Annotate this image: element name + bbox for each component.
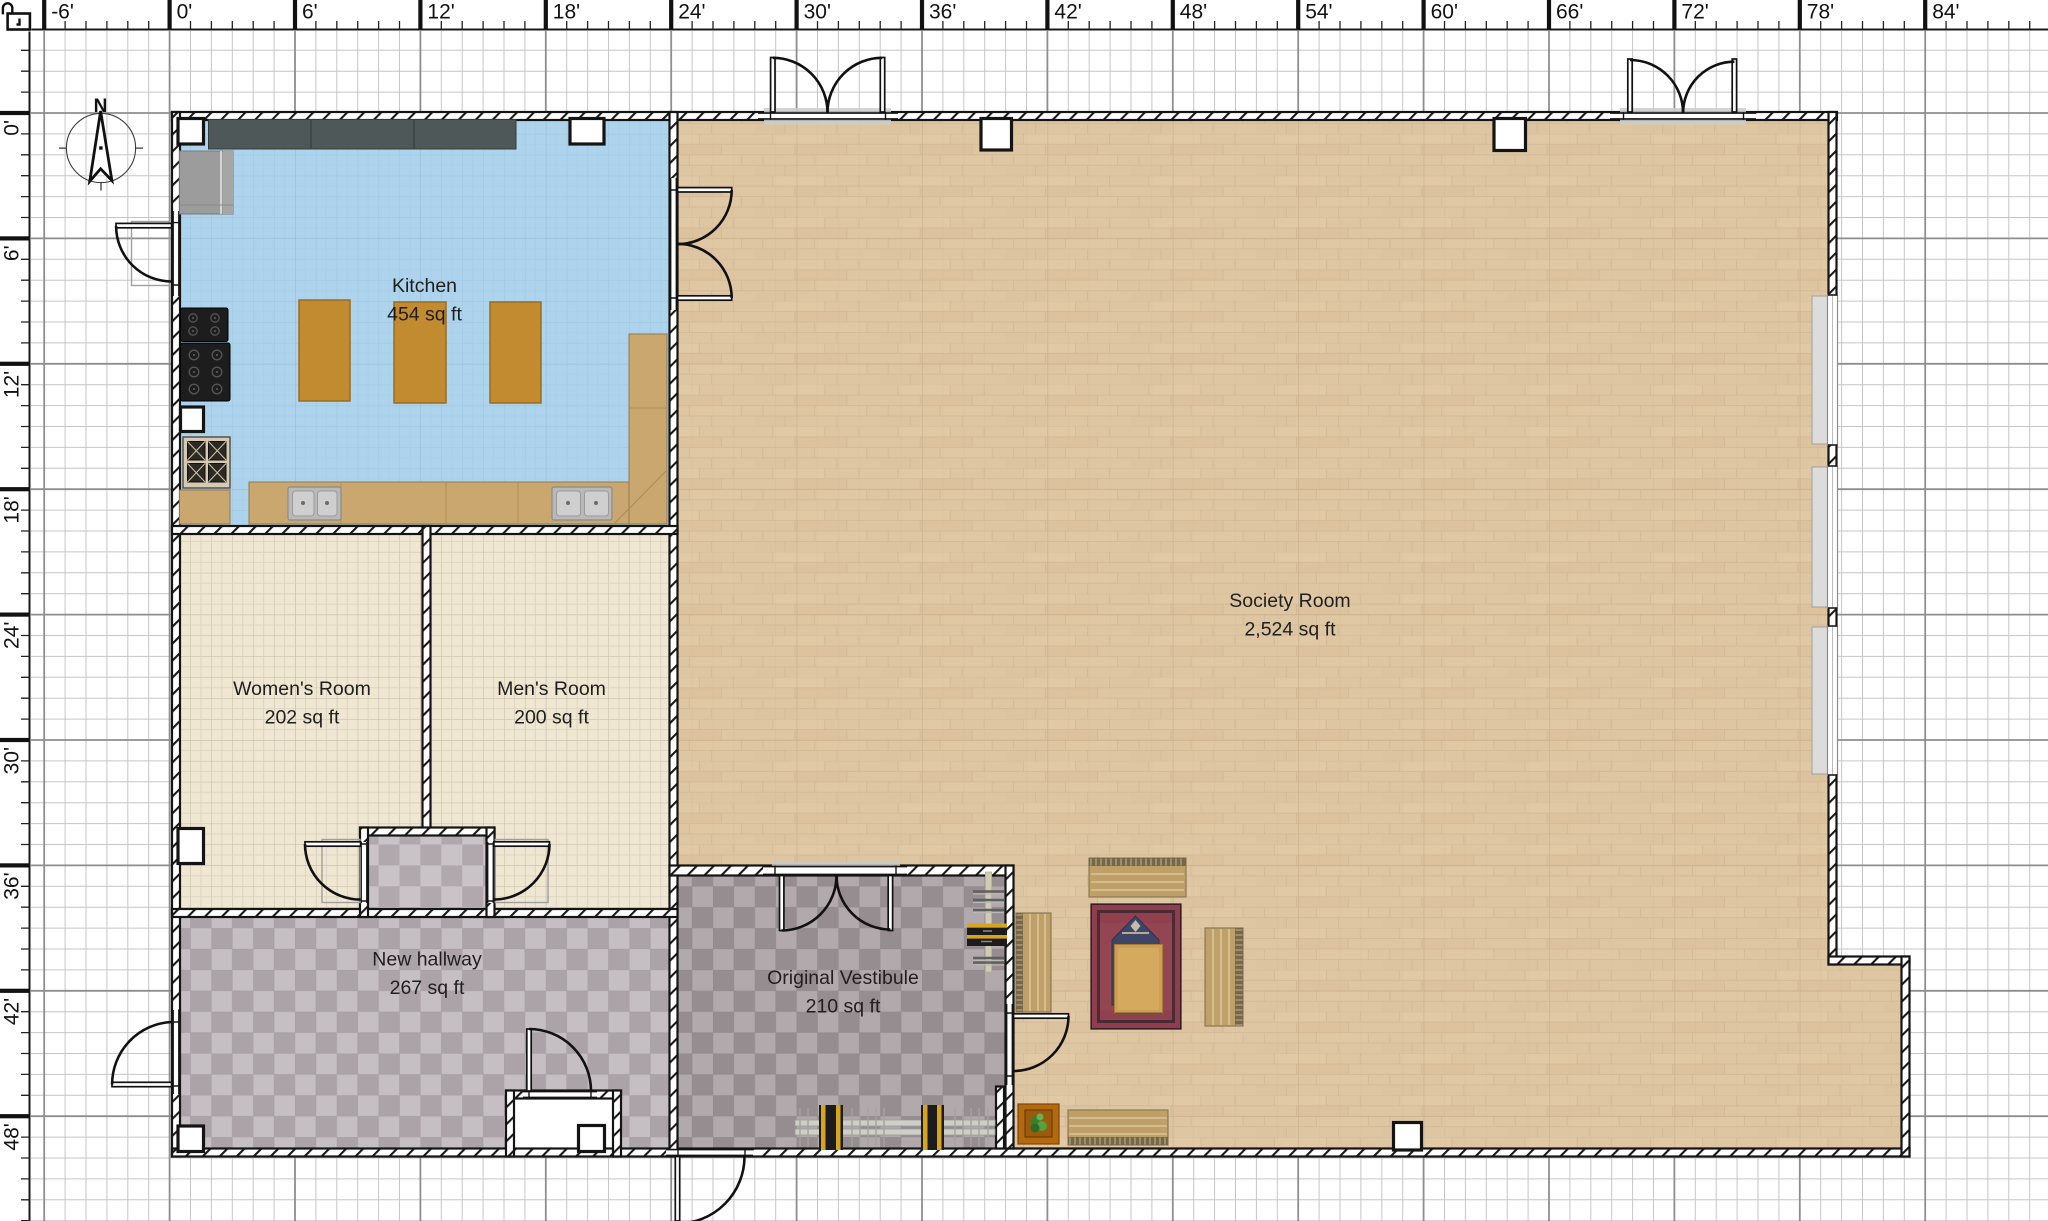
svg-text:42': 42': [1054, 1, 1081, 24]
svg-text:72': 72': [1681, 1, 1708, 24]
svg-text:210 sq ft: 210 sq ft: [806, 996, 881, 1018]
svg-text:Men's Room: Men's Room: [497, 678, 606, 700]
svg-text:24': 24': [678, 1, 705, 24]
svg-text:36': 36': [1, 872, 24, 899]
svg-text:200 sq ft: 200 sq ft: [514, 707, 589, 729]
svg-text:Kitchen: Kitchen: [392, 275, 457, 297]
svg-text:6': 6': [302, 1, 318, 24]
svg-text:202 sq ft: 202 sq ft: [265, 707, 340, 729]
svg-text:18': 18': [1, 496, 24, 523]
svg-text:84': 84': [1932, 1, 1959, 24]
svg-text:N: N: [94, 96, 108, 117]
svg-text:36': 36': [929, 1, 956, 24]
svg-text:Women's Room: Women's Room: [233, 678, 371, 700]
svg-text:30': 30': [804, 1, 831, 24]
svg-text:454 sq ft: 454 sq ft: [387, 304, 462, 326]
svg-text:Society Room: Society Room: [1229, 590, 1350, 612]
svg-text:2,524 sq ft: 2,524 sq ft: [1244, 619, 1336, 641]
svg-text:42': 42': [1, 998, 24, 1025]
svg-text:6': 6': [1, 245, 24, 261]
svg-text:54': 54': [1305, 1, 1332, 24]
svg-text:0': 0': [1, 120, 24, 136]
svg-text:Original Vestibule: Original Vestibule: [767, 967, 919, 989]
svg-text:66': 66': [1556, 1, 1583, 24]
svg-text:78': 78': [1807, 1, 1834, 24]
svg-text:267 sq ft: 267 sq ft: [390, 977, 465, 999]
svg-text:18': 18': [553, 1, 580, 24]
svg-text:0': 0': [177, 1, 193, 24]
svg-text:24': 24': [1, 622, 24, 649]
svg-text:-6': -6': [51, 1, 74, 24]
svg-text:New hallway: New hallway: [372, 949, 482, 971]
svg-text:12': 12': [427, 1, 454, 24]
svg-text:48': 48': [1, 1123, 24, 1150]
svg-text:30': 30': [1, 747, 24, 774]
svg-text:60': 60': [1431, 1, 1458, 24]
svg-text:48': 48': [1180, 1, 1207, 24]
svg-text:12': 12': [1, 371, 24, 398]
